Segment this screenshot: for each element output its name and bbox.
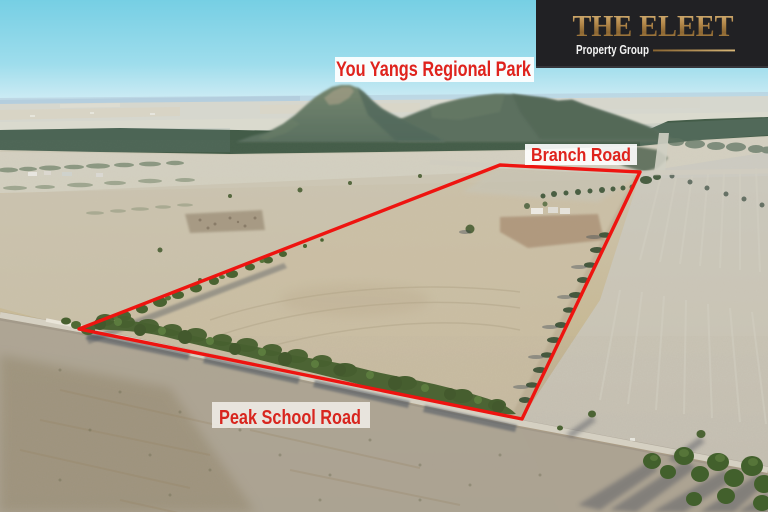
svg-text:You Yangs Regional Park: You Yangs Regional Park [336,58,531,81]
svg-text:Branch Road: Branch Road [531,145,631,165]
svg-text:THE ELEET: THE ELEET [573,8,734,43]
svg-text:Property Group: Property Group [576,43,649,57]
svg-text:Peak School Road: Peak School Road [219,407,361,429]
